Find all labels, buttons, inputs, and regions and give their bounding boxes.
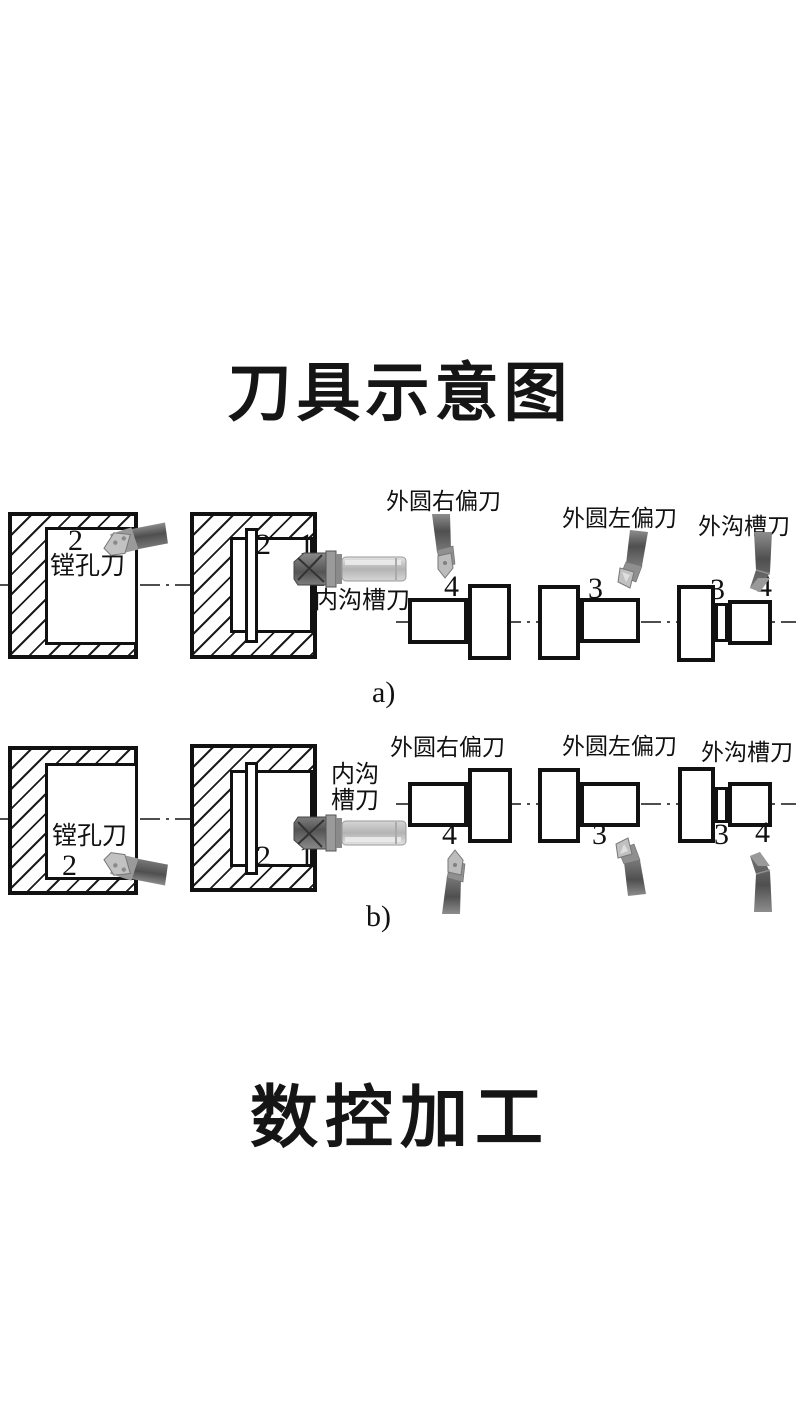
right-offset-tool-label-a: 外圆右偏刀 bbox=[386, 489, 501, 515]
shaft-large-step bbox=[538, 585, 580, 660]
shaft-end-step bbox=[728, 600, 772, 645]
shaft-large-step bbox=[468, 768, 512, 843]
caption-b: b) bbox=[366, 902, 391, 932]
internal-groove-label-line1: 内沟 bbox=[331, 762, 379, 788]
internal-groove-tool-label-b: 内沟 槽刀 bbox=[331, 762, 379, 814]
internal-groove-label-line2: 槽刀 bbox=[331, 788, 379, 814]
external-groove-tool-icon-a bbox=[746, 532, 778, 598]
shaft-large-step bbox=[678, 767, 715, 843]
right-offset-tool-icon-a bbox=[424, 514, 458, 582]
shaft-large-step bbox=[468, 584, 511, 660]
left-offset-tool-icon-a bbox=[616, 530, 650, 594]
groove-number-3-a: 3 bbox=[710, 575, 725, 605]
groove-number-3-b: 3 bbox=[714, 820, 729, 850]
page-title: 刀具示意图 bbox=[0, 342, 800, 434]
step-number-3-b: 3 bbox=[592, 820, 607, 850]
shaft-large-step bbox=[538, 768, 580, 843]
tool-schematic-page: 刀具示意图 2 镗孔刀 2 1 内沟槽刀 bbox=[0, 0, 800, 1422]
boring-number-a: 2 bbox=[68, 526, 83, 556]
boring-tool-label-b: 镗孔刀 bbox=[52, 824, 127, 850]
shaft-small-step bbox=[408, 598, 468, 644]
caption-a: a) bbox=[372, 678, 395, 708]
external-groove-tool-label-b: 外沟槽刀 bbox=[701, 740, 793, 766]
shaft-small-step bbox=[408, 782, 468, 827]
left-offset-tool-label-b: 外圆左偏刀 bbox=[562, 734, 677, 760]
shaft-small-step bbox=[580, 782, 640, 827]
footer-title: 数控加工 bbox=[0, 1062, 800, 1161]
left-offset-tool-icon-b bbox=[614, 832, 648, 896]
groove-number-4-b: 4 bbox=[755, 818, 770, 848]
right-offset-tool-label-b: 外圆右偏刀 bbox=[390, 735, 505, 761]
internal-groove-tool-icon-a bbox=[292, 550, 410, 588]
left-offset-tool-label-a: 外圆左偏刀 bbox=[562, 506, 677, 532]
boring-number-b: 2 bbox=[62, 851, 77, 881]
groove-slot-number-a: 2 bbox=[256, 530, 271, 560]
external-groove-tool-icon-b bbox=[746, 846, 778, 912]
right-offset-tool-icon-b bbox=[434, 846, 468, 914]
groove-slot-number-b: 2 bbox=[256, 842, 271, 872]
external-groove-slot bbox=[715, 603, 728, 642]
internal-groove-tool-icon-b bbox=[292, 814, 410, 852]
step-number-3-a: 3 bbox=[588, 574, 603, 604]
internal-groove-tool-label-a: 内沟槽刀 bbox=[314, 588, 410, 614]
